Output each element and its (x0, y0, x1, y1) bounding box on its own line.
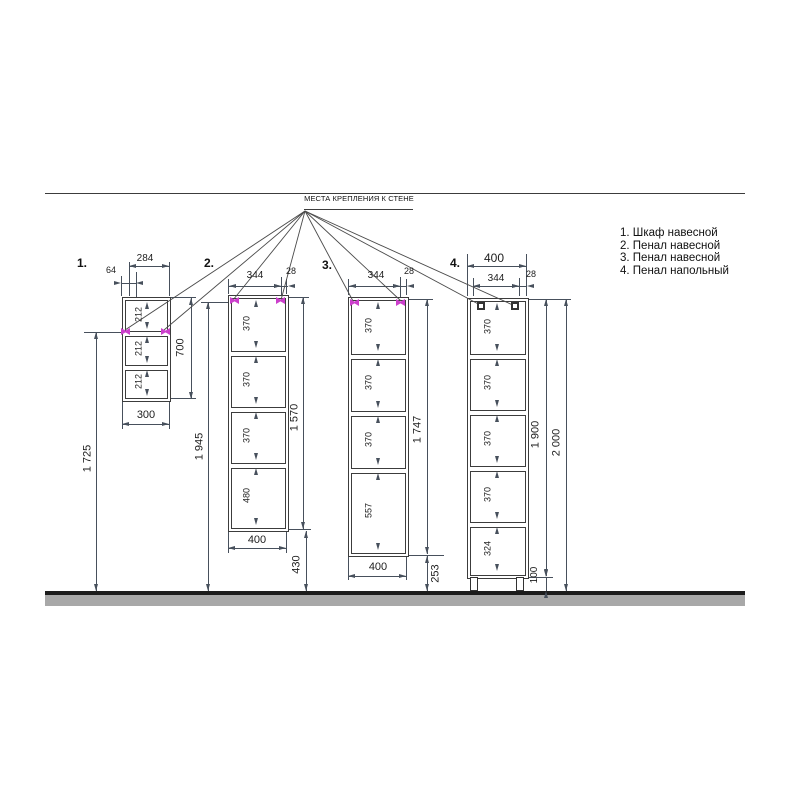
dimension-arrow (145, 302, 149, 309)
dimension-arrow (254, 300, 258, 307)
dimension-label: 370 (242, 355, 253, 405)
dimension-arrow (145, 356, 149, 363)
dimension-label: 400 (469, 251, 519, 265)
dimension-arrow (495, 471, 499, 478)
dimension-arrow (162, 422, 169, 426)
dimension-arrow (376, 416, 380, 423)
dimension-arrow (254, 518, 258, 525)
dimension-label: 28 (506, 269, 556, 280)
dimension-label: 370 (483, 470, 494, 520)
dimension-arrow (519, 264, 526, 268)
legend-item: 2. Пенал навесной (620, 240, 729, 253)
dimension-arrow (349, 284, 356, 288)
dimension-label: 430 (291, 540, 304, 590)
dimension-arrow (425, 547, 429, 554)
dimension-label: 370 (242, 411, 253, 461)
dimension-arrow (274, 284, 281, 288)
dimension-label: 64 (86, 265, 136, 276)
dimension-arrow (254, 356, 258, 363)
dimension-arrow (495, 415, 499, 422)
dimension-arrow (206, 302, 210, 309)
dimension-arrow (544, 570, 548, 577)
dimension-arrow (495, 359, 499, 366)
dimension-arrow (114, 281, 121, 285)
dimension-label: 400 (232, 534, 282, 547)
dimension-label: 480 (242, 471, 253, 521)
dimension-arrow (376, 473, 380, 480)
dimension-arrow (527, 284, 534, 288)
dimension-label: 1 570 (289, 393, 302, 443)
dimension-arrow (495, 344, 499, 351)
dimension-arrow (544, 591, 548, 598)
dimension-arrow (399, 574, 406, 578)
dimension-arrow (376, 344, 380, 351)
dimension-label: 370 (483, 414, 494, 464)
dimension-label: 28 (266, 266, 316, 277)
dimension-label: 1 900 (530, 410, 543, 460)
dimension-arrow (301, 522, 305, 529)
dimension-arrow (229, 284, 236, 288)
legend-item: 3. Пенал навесной (620, 252, 729, 265)
dimension-arrow (495, 456, 499, 463)
dimension-label: 370 (364, 301, 375, 351)
dimension-arrow (122, 422, 129, 426)
legend-item: 4. Пенал напольный (620, 265, 729, 278)
technical-drawing: МЕСТА КРЕПЛЕНИЯ К СТЕНЕ 1. 2. 3. 4. (0, 0, 800, 800)
dimension-arrow (254, 341, 258, 348)
dimension-arrow (376, 458, 380, 465)
dimension-arrow (145, 389, 149, 396)
dimension-arrow (376, 359, 380, 366)
dimension-arrow (495, 303, 499, 310)
dimension-arrow (376, 302, 380, 309)
dimension-arrow (564, 584, 568, 591)
cabinet-3-index: 3. (322, 258, 332, 272)
dimension-arrow (94, 332, 98, 339)
dimension-arrow (348, 574, 355, 578)
dimension-arrow (254, 468, 258, 475)
dimension-label: 370 (483, 302, 494, 352)
dimension-arrow (304, 584, 308, 591)
dimension-arrow (376, 401, 380, 408)
dimension-arrow (189, 298, 193, 305)
dimension-label: 370 (483, 358, 494, 408)
mounting-points-label: МЕСТА КРЕПЛЕНИЯ К СТЕНЕ (303, 194, 415, 203)
dimension-label: 370 (242, 299, 253, 349)
dimension-arrow (136, 281, 143, 285)
dimension-label: 284 (120, 253, 170, 265)
dimension-label: 100 (529, 550, 541, 600)
cabinet-4-index: 4. (450, 256, 460, 270)
dimension-arrow (145, 336, 149, 343)
dimension-label: 2 000 (551, 418, 564, 468)
dimension-arrow (145, 370, 149, 377)
dimension-arrow (304, 531, 308, 538)
dimension-arrow (376, 543, 380, 550)
mount-bracket (511, 302, 519, 310)
dimension-label: 28 (384, 266, 434, 277)
cabinet-2-index: 2. (204, 256, 214, 270)
dimension-label: 370 (364, 415, 375, 465)
dimension-arrow (425, 299, 429, 306)
legend-item: 1. Шкаф навесной (620, 227, 729, 240)
dimension-arrow (407, 284, 414, 288)
dimension-arrow (189, 392, 193, 399)
mounting-leader-lines (0, 0, 800, 800)
dimension-arrow (564, 299, 568, 306)
dimension-arrow (254, 397, 258, 404)
dimension-label: 1 747 (412, 405, 425, 455)
dimension-arrow (495, 400, 499, 407)
dimension-label: 1 945 (194, 422, 207, 472)
dimension-label: 557 (364, 486, 375, 536)
dimension-label: 370 (364, 358, 375, 408)
dimension-label: 400 (353, 561, 403, 574)
dimension-arrow (495, 527, 499, 534)
dimension-arrow (495, 564, 499, 571)
dimension-arrow (288, 284, 295, 288)
dimension-arrow (393, 284, 400, 288)
dimension-arrow (254, 412, 258, 419)
dimension-arrow (495, 512, 499, 519)
dimension-arrow (145, 322, 149, 329)
dimension-arrow (425, 556, 429, 563)
dimension-label: 253 (430, 549, 443, 599)
dimension-arrow (206, 584, 210, 591)
dimension-label: 1 725 (82, 434, 95, 484)
dimension-label: 700 (175, 323, 188, 373)
dimension-arrow (301, 297, 305, 304)
legend: 1. Шкаф навесной 2. Пенал навесной 3. Пе… (620, 227, 729, 278)
dimension-label: 300 (121, 409, 171, 422)
dimension-arrow (544, 299, 548, 306)
dimension-label: 212 (134, 357, 145, 407)
dimension-arrow (94, 584, 98, 591)
dimension-arrow (254, 453, 258, 460)
dimension-arrow (425, 584, 429, 591)
dimension-label: 324 (483, 524, 494, 574)
